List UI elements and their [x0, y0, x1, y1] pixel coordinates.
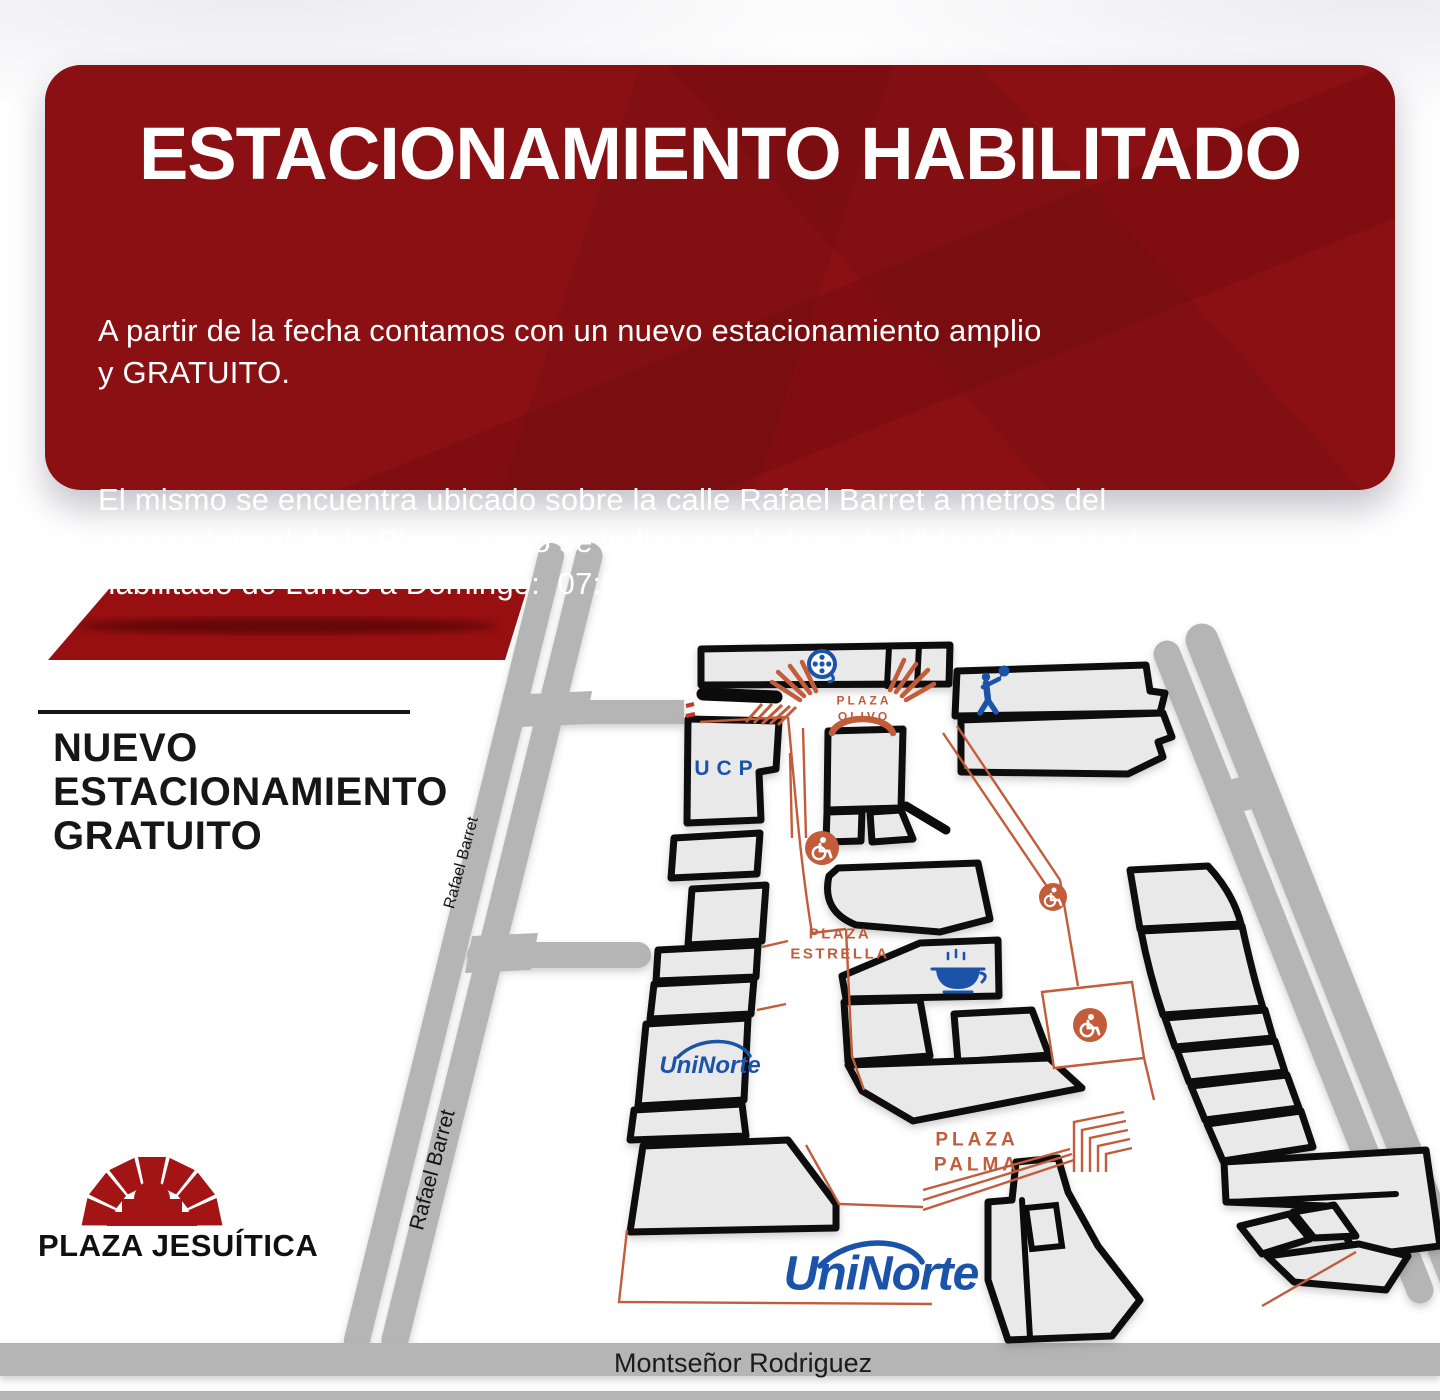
wheelchair-icon: [805, 831, 839, 865]
building: [1141, 926, 1263, 1015]
building: [656, 945, 758, 981]
area-label-plaza-estrella: PLAZA ESTRELLA: [790, 925, 889, 964]
new-parking-label: NUEVO ESTACIONAMIENTO GRATUITO: [53, 726, 448, 858]
plaza-jesuitica-logo-text: PLAZA JESUÍTICA: [38, 1228, 318, 1264]
building: [1130, 866, 1241, 929]
banner-paragraph: A partir de la fecha contamos con un nue…: [98, 310, 1358, 394]
building: [827, 729, 903, 810]
building: [688, 885, 766, 945]
wheelchair-icon: [1073, 1008, 1107, 1042]
building: [870, 810, 913, 842]
flyer-page: ESTACIONAMIENTO HABILITADO A partir de l…: [0, 0, 1440, 1400]
building: [954, 1010, 1049, 1062]
building: [848, 1058, 1082, 1121]
building: [630, 1104, 746, 1140]
building: [1207, 1111, 1313, 1161]
building: [961, 713, 1172, 774]
tenant-label-ucp: UCP: [694, 757, 759, 781]
area-label-plaza-olivo: PLAZA OLIVO: [837, 693, 892, 724]
wheelchair-icon: [1039, 883, 1067, 911]
building: [630, 1140, 836, 1232]
tenant-label-uninorte: UniNorte: [659, 1052, 760, 1080]
building: [844, 1000, 930, 1062]
plaza-jesuitica-logo-icon: [82, 1157, 223, 1232]
callout-divider: [38, 710, 410, 714]
banner-paragraph: El mismo se encuentra ubicado sobre la c…: [98, 479, 1358, 605]
building: [988, 1158, 1140, 1340]
building: [650, 979, 754, 1019]
announcement-banner: ESTACIONAMIENTO HABILITADO A partir de l…: [45, 65, 1395, 490]
building: [1267, 1244, 1408, 1290]
page-title: ESTACIONAMIENTO HABILITADO: [65, 111, 1375, 196]
street-label-montsenor-rodriguez: Montseñor Rodriguez: [614, 1348, 872, 1379]
tenant-label-uninorte: UniNorte: [784, 1247, 979, 1302]
mall-buildings: [630, 645, 1440, 1340]
banner-body: A partir de la fecha contamos con un nue…: [98, 226, 1358, 690]
area-label-plaza-palma: PLAZA PALMA: [934, 1128, 1020, 1177]
building: [828, 863, 990, 932]
stairs-icon: [1074, 1112, 1132, 1172]
building: [671, 833, 760, 878]
